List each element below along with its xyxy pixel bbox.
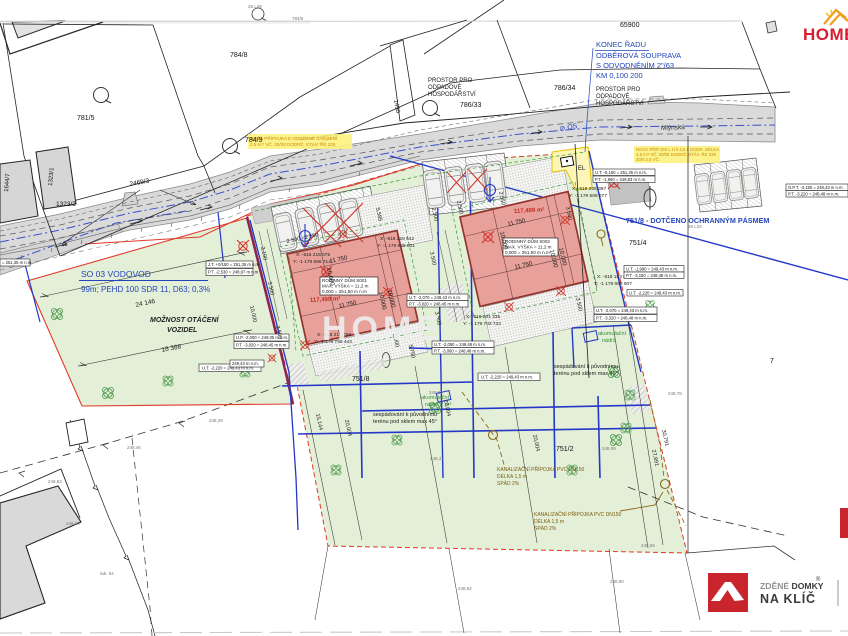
- svg-text:S ODVODNĚNÍM 2"/63: S ODVODNĚNÍM 2"/63: [596, 61, 674, 70]
- svg-text:P.T. -3,020 = 248,45 m n.m.: P.T. -3,020 = 248,45 m n.m.: [409, 302, 460, 307]
- svg-text:DÉLKA 1,5 m: DÉLKA 1,5 m: [497, 473, 527, 480]
- svg-text:DÉLKA 1,5 m: DÉLKA 1,5 m: [534, 518, 564, 525]
- svg-text:PROSTOR PRO: PROSTOR PRO: [596, 87, 641, 93]
- svg-text:786/34: 786/34: [554, 85, 576, 92]
- svg-text:MOŽNOST OTÁČENÍ: MOŽNOST OTÁČENÍ: [150, 315, 219, 324]
- svg-text:terénu pod sklem max 45°: terénu pod sklem max 45°: [554, 371, 618, 377]
- svg-text:U.T. -2,220 = 249,43 m n.m.: U.T. -2,220 = 249,43 m n.m.: [629, 291, 681, 296]
- svg-text:Y: -1 179 689 001: Y: -1 179 689 001: [377, 243, 415, 249]
- svg-text:30/0 2,5 VČ.: 30/0 2,5 VČ.: [636, 157, 660, 162]
- svg-text:sespádování k původnímu: sespádování k původnímu: [554, 363, 618, 370]
- svg-text:PROSTOR PRO: PROSTOR PRO: [428, 78, 473, 84]
- svg-text:781/5: 781/5: [77, 115, 95, 122]
- svg-text:248,69: 248,69: [641, 543, 655, 548]
- svg-text:751/4: 751/4: [629, 240, 647, 247]
- svg-text:KANALIZAČNÍ PŘÍPOJKA PVC DN150: KANALIZAČNÍ PŘÍPOJKA PVC DN150: [534, 510, 621, 518]
- svg-text:P.T. -3,220 = 248,48 m n.m.: P.T. -3,220 = 248,48 m n.m.: [788, 192, 839, 197]
- svg-text:tab. 94: tab. 94: [100, 571, 114, 576]
- svg-text:248,46: 248,46: [127, 445, 141, 450]
- svg-text:249,90: 249,90: [66, 521, 80, 526]
- svg-text:RODINNÝ DŮM S002: RODINNÝ DŮM S002: [505, 238, 550, 244]
- svg-text:784/8: 784/8: [292, 16, 304, 21]
- svg-text:25 L22: 25 L22: [688, 224, 702, 229]
- svg-text:O.P.T. -3,150 = 248,43 m n.m.: O.P.T. -3,150 = 248,43 m n.m.: [788, 185, 844, 190]
- svg-text:P.T. -2,530 = 248,97 m n.m: P.T. -2,530 = 248,97 m n.m: [208, 270, 259, 275]
- svg-text:= 251,35 m n.m: = 251,35 m n.m: [2, 260, 32, 265]
- svg-text:1323/2: 1323/2: [56, 201, 76, 208]
- svg-text:248,80: 248,80: [610, 579, 624, 584]
- svg-text:248,51: 248,51: [429, 390, 443, 395]
- svg-text:ZDĚNÉ DOMKY: ZDĚNÉ DOMKY: [760, 580, 824, 591]
- svg-text:U.T. -1,990 = 249,43 m n.m.: U.T. -1,990 = 249,43 m n.m.: [626, 267, 678, 272]
- svg-text:Y: -1 179 689 077: Y: -1 179 689 077: [569, 193, 607, 199]
- svg-text:X: -516 201 335: X: -516 201 335: [466, 314, 500, 320]
- svg-text:0,000 = 251,50 m n.m: 0,000 = 251,50 m n.m: [322, 289, 367, 294]
- svg-text:P.T. -3,020 = 248,45 m n.m.: P.T. -3,020 = 248,45 m n.m.: [236, 343, 287, 348]
- svg-text:7: 7: [770, 358, 774, 365]
- svg-text:99m; PEHD 100 SDR 11, D63; 0,3: 99m; PEHD 100 SDR 11, D63; 0,3%: [81, 285, 210, 294]
- svg-text:U.T. -0,150 = 251,35 m n.m.: U.T. -0,150 = 251,35 m n.m.: [595, 170, 647, 175]
- svg-text:0,000 = 251,50 m n.m: 0,000 = 251,50 m n.m: [505, 250, 550, 255]
- svg-text:P.T. -3,320 = 248,48 m n.m.: P.T. -3,320 = 248,48 m n.m.: [596, 316, 647, 321]
- svg-text:248,63: 248,63: [48, 479, 62, 484]
- svg-text:784/9: 784/9: [245, 137, 263, 144]
- svg-text:751/2: 751/2: [556, 446, 574, 453]
- svg-text:MAX. VÝŠKA = 11,2 m: MAX. VÝŠKA = 11,2 m: [505, 244, 552, 250]
- svg-text:NOVÁ PŘÍPOJKA E ODBĚRNÉ ZAŘÍZE: NOVÁ PŘÍPOJKA E ODBĚRNÉ ZAŘÍZENÍ: [250, 134, 338, 141]
- svg-text:VOZIDEL: VOZIDEL: [167, 327, 197, 334]
- svg-text:SO 03 VODOVOD: SO 03 VODOVOD: [81, 269, 151, 279]
- svg-text:X: -516 206 387: X: -516 206 387: [572, 186, 606, 192]
- svg-text:J.T. +0/150 = 251,35 m n.m: J.T. +0/150 = 251,35 m n.m: [208, 262, 259, 267]
- svg-text:akumulační: akumulační: [598, 331, 627, 337]
- svg-text:X: -516 215 075: X: -516 215 075: [296, 252, 330, 258]
- svg-text:786/33: 786/33: [460, 102, 482, 109]
- svg-text:Mlýnská: Mlýnská: [661, 124, 685, 132]
- svg-text:KONEC ŘADU: KONEC ŘADU: [596, 40, 646, 49]
- svg-text:HOME: HOME: [322, 310, 444, 348]
- svg-text:ODBĚROVÁ SOUPRAVA: ODBĚROVÁ SOUPRAVA: [596, 51, 681, 60]
- svg-text:NA KLÍČ: NA KLÍČ: [760, 591, 816, 606]
- svg-text:248,09: 248,09: [602, 446, 616, 451]
- svg-text:HOSPODÁŘSTVÍ: HOSPODÁŘSTVÍ: [428, 90, 476, 98]
- svg-text:EL: EL: [578, 166, 586, 172]
- svg-text:SPÁD 2%: SPÁD 2%: [534, 525, 557, 532]
- svg-text:X: -516 215 642: X: -516 215 642: [380, 236, 414, 242]
- svg-text:751/8: 751/8: [352, 376, 370, 383]
- svg-text:Y: -1 179 689 907: Y: -1 179 689 907: [594, 281, 632, 287]
- svg-text:Y: -1 179 696 714: Y: -1 179 696 714: [293, 259, 331, 265]
- svg-text:2,5 m? VČ. 30/08 DODRŽ. STÁV.: 2,5 m? VČ. 30/08 DODRŽ. STÁV. ŘE 228: [250, 140, 336, 147]
- svg-text:65900: 65900: [620, 22, 640, 29]
- svg-text:U.T. -2,220 = 249,43 m n.m.: U.T. -2,220 = 249,43 m n.m.: [481, 375, 533, 380]
- svg-text:249,43 m n.m.: 249,43 m n.m.: [232, 361, 259, 366]
- svg-text:784/8: 784/8: [230, 52, 248, 59]
- svg-text:KM 0,100 200: KM 0,100 200: [596, 71, 643, 80]
- svg-text:KANALIZAČNÍ PŘÍPOJKA PVC DN150: KANALIZAČNÍ PŘÍPOJKA PVC DN150: [497, 465, 584, 473]
- svg-text:terénu pod sklem max 45°: terénu pod sklem max 45°: [373, 419, 437, 425]
- svg-text:Y: -1 179 703 733: Y: -1 179 703 733: [463, 321, 501, 327]
- svg-text:248,47: 248,47: [430, 456, 444, 461]
- svg-text:U.T. -2,070 = 249,43 m n.m.: U.T. -2,070 = 249,43 m n.m.: [409, 295, 461, 300]
- svg-text:sespádování k původnímu: sespádování k původnímu: [373, 411, 437, 418]
- svg-text:P.T. -3,150 = 248,48 m n.m.: P.T. -3,150 = 248,48 m n.m.: [626, 273, 677, 278]
- svg-text:HOSPODÁŘSTVÍ: HOSPODÁŘSTVÍ: [596, 99, 644, 107]
- svg-text:ODPADOVÉ: ODPADOVÉ: [596, 93, 630, 100]
- svg-text:SPÁD 2%: SPÁD 2%: [497, 480, 520, 487]
- svg-text:248,78: 248,78: [668, 391, 682, 396]
- svg-text:248,29: 248,29: [209, 418, 223, 423]
- svg-text:248,62: 248,62: [458, 586, 472, 591]
- svg-text:ODPADOVÉ: ODPADOVÉ: [428, 84, 462, 91]
- svg-text:25 L49: 25 L49: [248, 4, 262, 9]
- svg-text:P.T. -3,060 = 248,48 m n.m.: P.T. -3,060 = 248,48 m n.m.: [434, 349, 485, 354]
- svg-text:HOME: HOME: [803, 25, 848, 44]
- svg-text:U.T. -2,070 = 249,43 m n.m.: U.T. -2,070 = 249,43 m n.m.: [596, 308, 648, 313]
- svg-text:P.T. -1,660 = 249,83 m n.m.: P.T. -1,660 = 249,83 m n.m.: [595, 177, 646, 182]
- svg-text:nádrž: nádrž: [602, 338, 616, 344]
- svg-text:®: ®: [816, 576, 821, 583]
